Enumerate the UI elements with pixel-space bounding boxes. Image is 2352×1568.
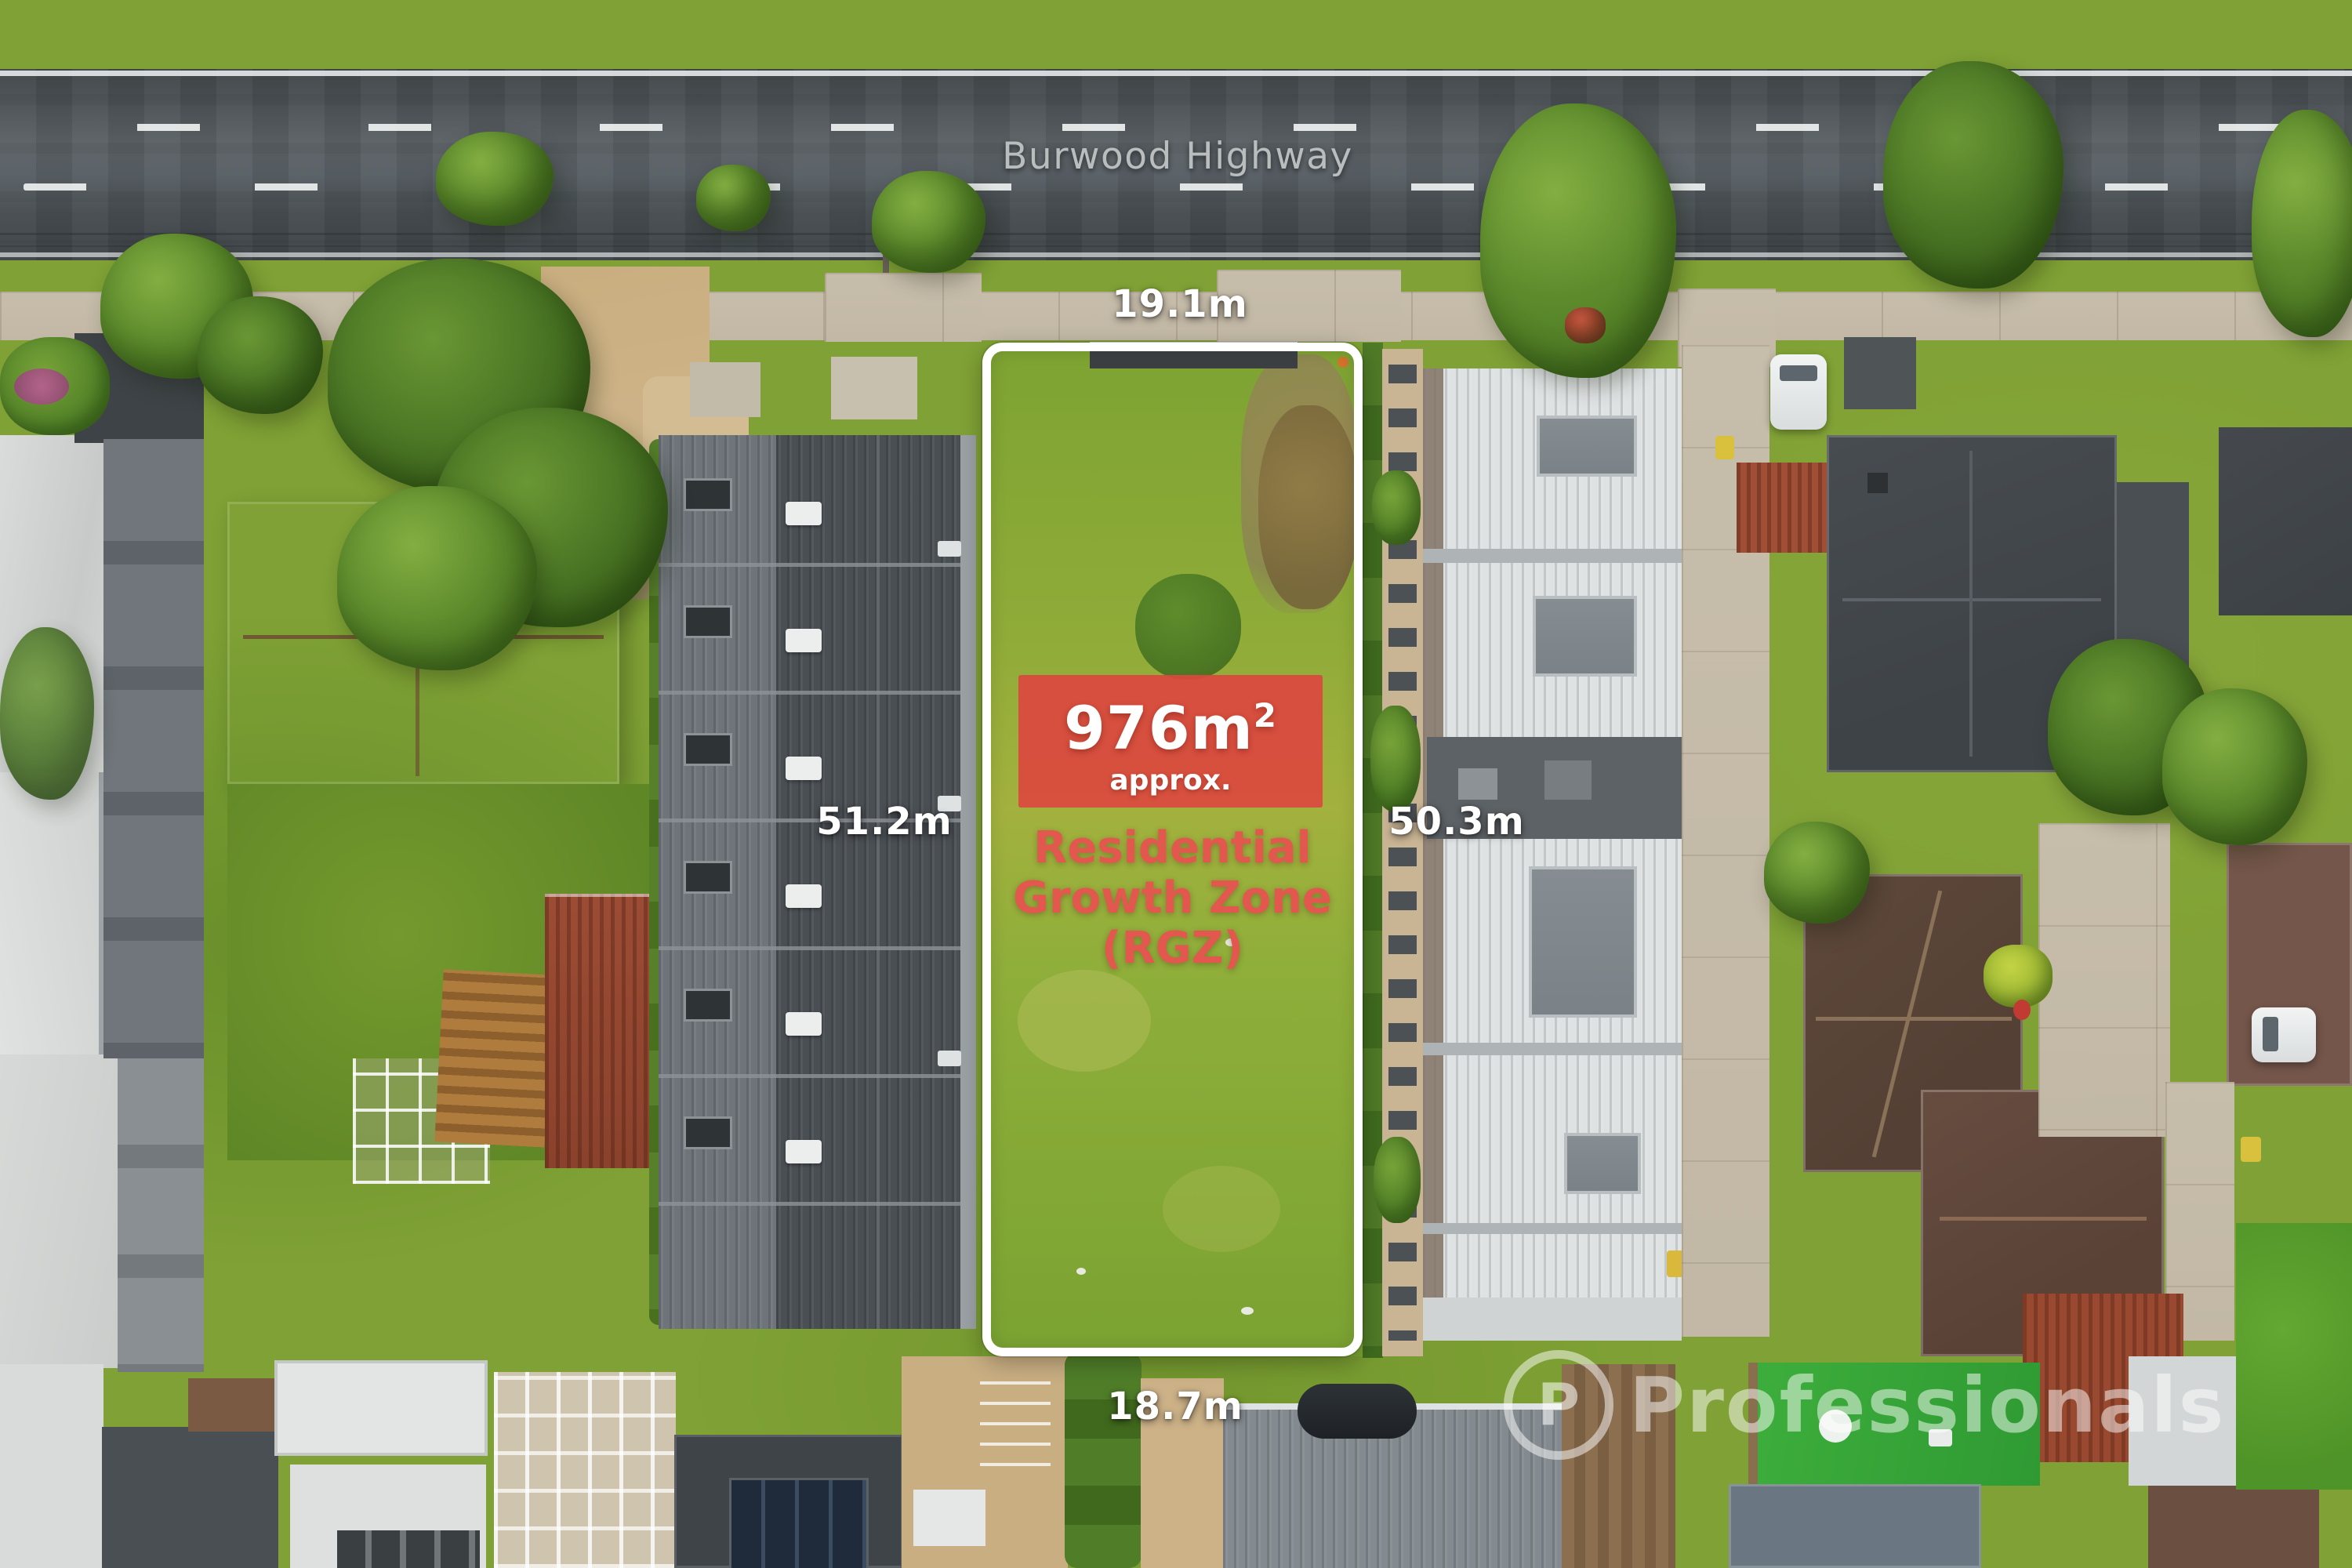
bottom-brown-roof: [2148, 1486, 2319, 1568]
skylight: [786, 629, 822, 652]
water-tank: [1298, 1384, 1417, 1439]
aerial-photograph: Burwood Highway 19.1m 51.2m 50.3m 18.7m …: [0, 0, 2352, 1568]
unit-divider: [659, 1202, 976, 1206]
chartreuse-bush: [1984, 945, 2053, 1007]
zone-line-1: Residential: [982, 823, 1363, 873]
tree: [2252, 110, 2352, 337]
townhouse-eave-strip: [960, 435, 976, 1329]
apartment-roof-white: [0, 772, 103, 1054]
tree: [1764, 822, 1870, 924]
dimension-label-top: 19.1m: [1112, 282, 1247, 326]
units-driveway: [2038, 823, 2170, 1137]
yellow-bin: [1715, 436, 1734, 459]
professionals-logo-icon: P: [1504, 1350, 1613, 1460]
roof-panel-dark: [684, 1116, 732, 1149]
courtyard-clutter: [1458, 768, 1497, 800]
bottom-window-row: [337, 1530, 480, 1568]
driveway-crossover-townhouses: [825, 273, 982, 342]
flower-bush-red: [1565, 307, 1606, 343]
roof-panel-dark: [684, 733, 732, 766]
area-superscript: 2: [1254, 696, 1277, 735]
bottom-dark-hip-roof: [674, 1435, 903, 1568]
roof-panel-dark: [684, 861, 732, 894]
roof-panel-grey: [1529, 866, 1637, 1018]
unit-divider: [659, 946, 976, 950]
dark-pad: [1844, 337, 1916, 409]
frame-grid: [980, 1380, 1051, 1466]
area-value: 976m2: [1064, 686, 1277, 758]
roof-panel-dark: [684, 605, 732, 638]
chimney: [1867, 473, 1888, 493]
unit-divider: [659, 563, 976, 567]
agency-watermark: P Professionals: [1504, 1350, 2225, 1460]
area-badge: 976m2 approx.: [1018, 675, 1323, 808]
roof-ridge: [1940, 1217, 2147, 1221]
construction-framing: [494, 1372, 676, 1568]
white-roof-section-gap: [1423, 549, 1682, 563]
dimension-label-left: 51.2m: [816, 800, 952, 844]
parked-car-white: [2252, 1007, 2316, 1062]
apartment-courtyards: [118, 1058, 204, 1372]
zone-line-3: (RGZ): [982, 924, 1363, 974]
car-windscreen: [2263, 1017, 2278, 1051]
tree: [0, 627, 94, 800]
white-roof-section-gap: [1423, 1223, 1682, 1234]
roof-panel-dark: [684, 989, 732, 1022]
ac-unit: [938, 541, 961, 557]
skylight: [786, 1140, 822, 1163]
townhouse-front-pads: [690, 362, 760, 417]
tree: [696, 165, 771, 231]
bottom-sandy-yard: [902, 1356, 1068, 1568]
white-roof-end: [1423, 1298, 1682, 1341]
bottom-brown-strip: [188, 1378, 276, 1432]
bottom-white-house: [274, 1360, 488, 1456]
street-name-label: Burwood Highway: [1002, 135, 1353, 178]
tree: [198, 296, 323, 414]
white-roof-section-gap: [1423, 1043, 1682, 1055]
tree: [1883, 61, 2063, 289]
townhouse-ridge-line: [877, 435, 880, 1329]
bottom-dark-roof: [102, 1427, 278, 1568]
timber-pile: [434, 969, 553, 1147]
bright-lawn: [2236, 1223, 2352, 1490]
townhouse-front-pads: [831, 357, 917, 419]
logo-letter: P: [1537, 1371, 1580, 1439]
rusty-roof: [1737, 463, 1840, 553]
tree: [2162, 688, 2307, 845]
dimension-label-bottom: 18.7m: [1107, 1385, 1243, 1428]
car-windscreen: [1780, 365, 1817, 381]
skylight: [786, 1012, 822, 1036]
unit-divider: [659, 691, 976, 695]
watermark-text: Professionals: [1629, 1361, 2225, 1450]
apartment-terrace-strip: [103, 439, 204, 1058]
roof-panel-grey: [1564, 1133, 1641, 1194]
bougainvillea-pink: [14, 368, 69, 405]
ac-unit: [938, 1051, 961, 1066]
skylight: [786, 757, 822, 780]
bottom-white-roof: [0, 1364, 103, 1568]
parked-car-white: [1770, 354, 1827, 430]
tree: [337, 486, 537, 670]
roof-panel-grey: [1533, 596, 1637, 677]
skylight: [786, 502, 822, 525]
roof-panel-grey: [1537, 416, 1637, 477]
white-shed: [913, 1490, 985, 1546]
solar-panels: [729, 1478, 869, 1568]
skylight: [786, 884, 822, 908]
path-shrub: [1370, 706, 1421, 811]
red-bin: [2013, 1000, 2031, 1020]
dimension-label-right: 50.3m: [1388, 800, 1524, 844]
tree: [872, 171, 985, 273]
path-shrub: [1374, 1137, 1421, 1223]
yellow-bin: [2241, 1137, 2261, 1162]
area-qualifier: approx.: [1109, 764, 1231, 797]
tree: [436, 132, 554, 226]
roof-ridge: [1816, 1017, 2012, 1021]
roof-ridge: [1969, 451, 1973, 757]
zone-line-2: Growth Zone: [982, 873, 1363, 924]
courtyard-clutter: [1544, 760, 1592, 800]
zone-label: Residential Growth Zone (RGZ): [982, 823, 1363, 974]
bottom-bluegrey-roof: [1729, 1484, 1981, 1568]
rusty-shed-roof: [545, 894, 653, 1168]
unit-divider: [659, 1074, 976, 1078]
dark-hip-roof-house: [2219, 427, 2352, 615]
roof-panel-dark: [684, 478, 732, 511]
path-shrub: [1372, 470, 1421, 545]
